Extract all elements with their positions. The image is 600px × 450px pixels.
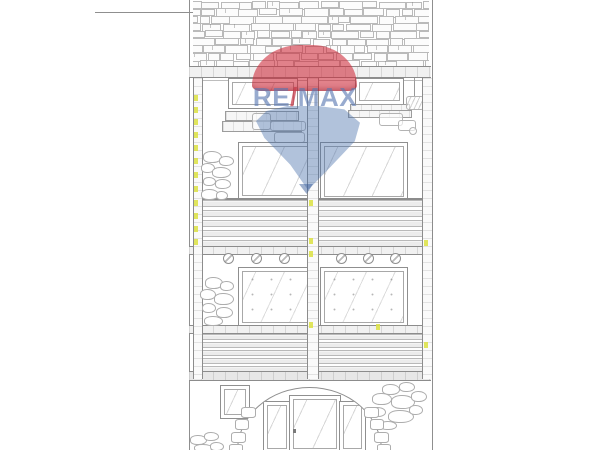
highlight-mark	[309, 251, 313, 257]
downlight-icon	[251, 253, 262, 264]
stone	[202, 303, 216, 313]
stone	[220, 281, 234, 291]
elevation-drawing: RE/MAX	[0, 0, 600, 450]
stone	[411, 391, 427, 402]
downlight-icon	[279, 253, 290, 264]
highlight-mark	[194, 200, 198, 206]
downlight-icon	[363, 253, 374, 264]
highlight-mark	[194, 213, 198, 219]
downlight-icon	[223, 253, 234, 264]
highlight-mark	[309, 322, 313, 328]
stone	[399, 382, 415, 392]
highlight-mark	[194, 226, 198, 232]
highlight-mark	[194, 119, 198, 125]
highlight-mark	[309, 238, 313, 244]
highlight-mark	[194, 158, 198, 164]
arch-stone	[374, 432, 389, 443]
highlight-mark	[194, 239, 198, 245]
stone	[214, 293, 234, 305]
stone	[204, 316, 223, 326]
downlight-icon	[390, 253, 401, 264]
arch-stone	[377, 444, 391, 450]
decor-layer	[0, 0, 600, 450]
stone	[212, 167, 231, 178]
arch-stone	[364, 407, 379, 418]
highlight-mark	[194, 107, 198, 113]
stone	[215, 179, 231, 189]
arch-stone	[231, 432, 246, 443]
stone	[372, 393, 392, 405]
stone	[216, 191, 228, 200]
arch-stone	[229, 444, 243, 450]
highlight-mark	[309, 200, 313, 206]
highlight-mark	[376, 324, 380, 330]
highlight-mark	[194, 132, 198, 138]
stone	[204, 432, 219, 441]
highlight-mark	[424, 240, 428, 246]
stone	[210, 442, 224, 450]
highlight-mark	[194, 145, 198, 151]
stone	[219, 156, 234, 166]
highlight-mark	[194, 95, 198, 101]
highlight-mark	[194, 186, 198, 192]
arch-stone	[370, 419, 384, 430]
stone	[409, 405, 423, 415]
arch-stone	[241, 407, 256, 418]
highlight-mark	[424, 342, 428, 348]
highlight-mark	[194, 172, 198, 178]
downlight-icon	[336, 253, 347, 264]
arch-stone	[235, 419, 249, 430]
